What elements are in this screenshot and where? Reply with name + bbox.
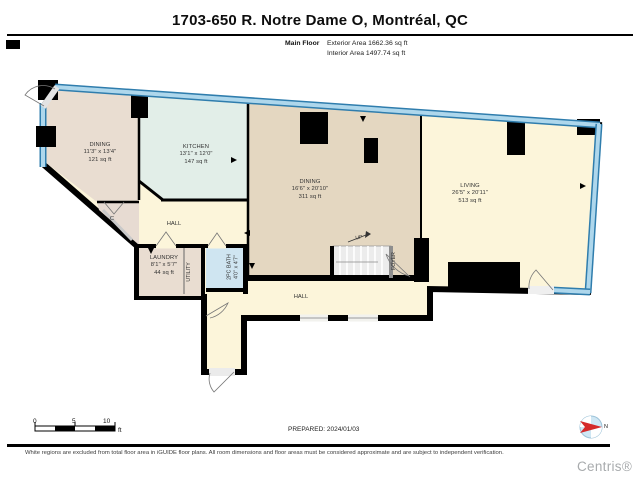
room-name: LAUNDRY	[150, 255, 178, 262]
room-label-dining-left: DINING 11'3" x 13'4" 121 sq ft	[84, 142, 117, 164]
room-area: 513 sq ft	[452, 198, 488, 205]
label-closet: C	[110, 216, 114, 222]
label-foyer: FOYER	[391, 252, 397, 270]
room-label-bath: 2PC BATH 4'0" x 4'7"	[226, 254, 239, 280]
label-utility: UTILITY	[186, 262, 192, 281]
room-dims: 13'1" x 12'0"	[179, 151, 212, 158]
compass-north-label: N	[604, 424, 608, 430]
room-name: KITCHEN	[179, 144, 212, 151]
room-label-dining-center: DINING 16'6" x 20'10" 311 sq ft	[292, 179, 328, 201]
room-label-living: LIVING 26'5" x 20'11" 513 sq ft	[452, 183, 488, 205]
room-name: DINING	[292, 179, 328, 186]
label-hall-upper: HALL	[167, 221, 182, 227]
scale-unit: ft	[118, 427, 122, 434]
scale-tick-10: 10	[103, 418, 110, 425]
scale-tick-0: 0	[33, 418, 37, 425]
room-dims: 26'5" x 20'11"	[452, 190, 488, 197]
prepared-date: PREPARED: 2024/01/03	[288, 426, 359, 433]
room-name: DINING	[84, 142, 117, 149]
room-label-laundry: LAUNDRY 8'1" x 5'7" 44 sq ft	[150, 255, 178, 277]
room-area: 147 sq ft	[179, 159, 212, 166]
room-area: 44 sq ft	[150, 270, 178, 277]
brand-logo: Centris®	[577, 459, 632, 474]
room-label-kitchen: KITCHEN 13'1" x 12'0" 147 sq ft	[179, 144, 212, 166]
scale-tick-5: 5	[72, 418, 76, 425]
label-hall-lower: HALL	[294, 294, 309, 300]
label-up: UP	[355, 235, 363, 242]
room-area: 311 sq ft	[292, 194, 328, 201]
footer-rule	[7, 444, 610, 447]
disclaimer-text: White regions are excluded from total fl…	[25, 450, 504, 456]
room-dims: 16'6" x 20'10"	[292, 186, 328, 193]
room-name: 2PC BATH	[226, 254, 233, 280]
room-name: LIVING	[452, 183, 488, 190]
room-area: 121 sq ft	[84, 157, 117, 164]
room-dims: 11'3" x 13'4"	[84, 149, 117, 156]
room-dims: 4'0" x 4'7"	[233, 254, 240, 280]
room-dims: 8'1" x 5'7"	[150, 262, 178, 269]
compass-icon	[580, 416, 602, 438]
floor-plan-graphic	[0, 0, 640, 480]
